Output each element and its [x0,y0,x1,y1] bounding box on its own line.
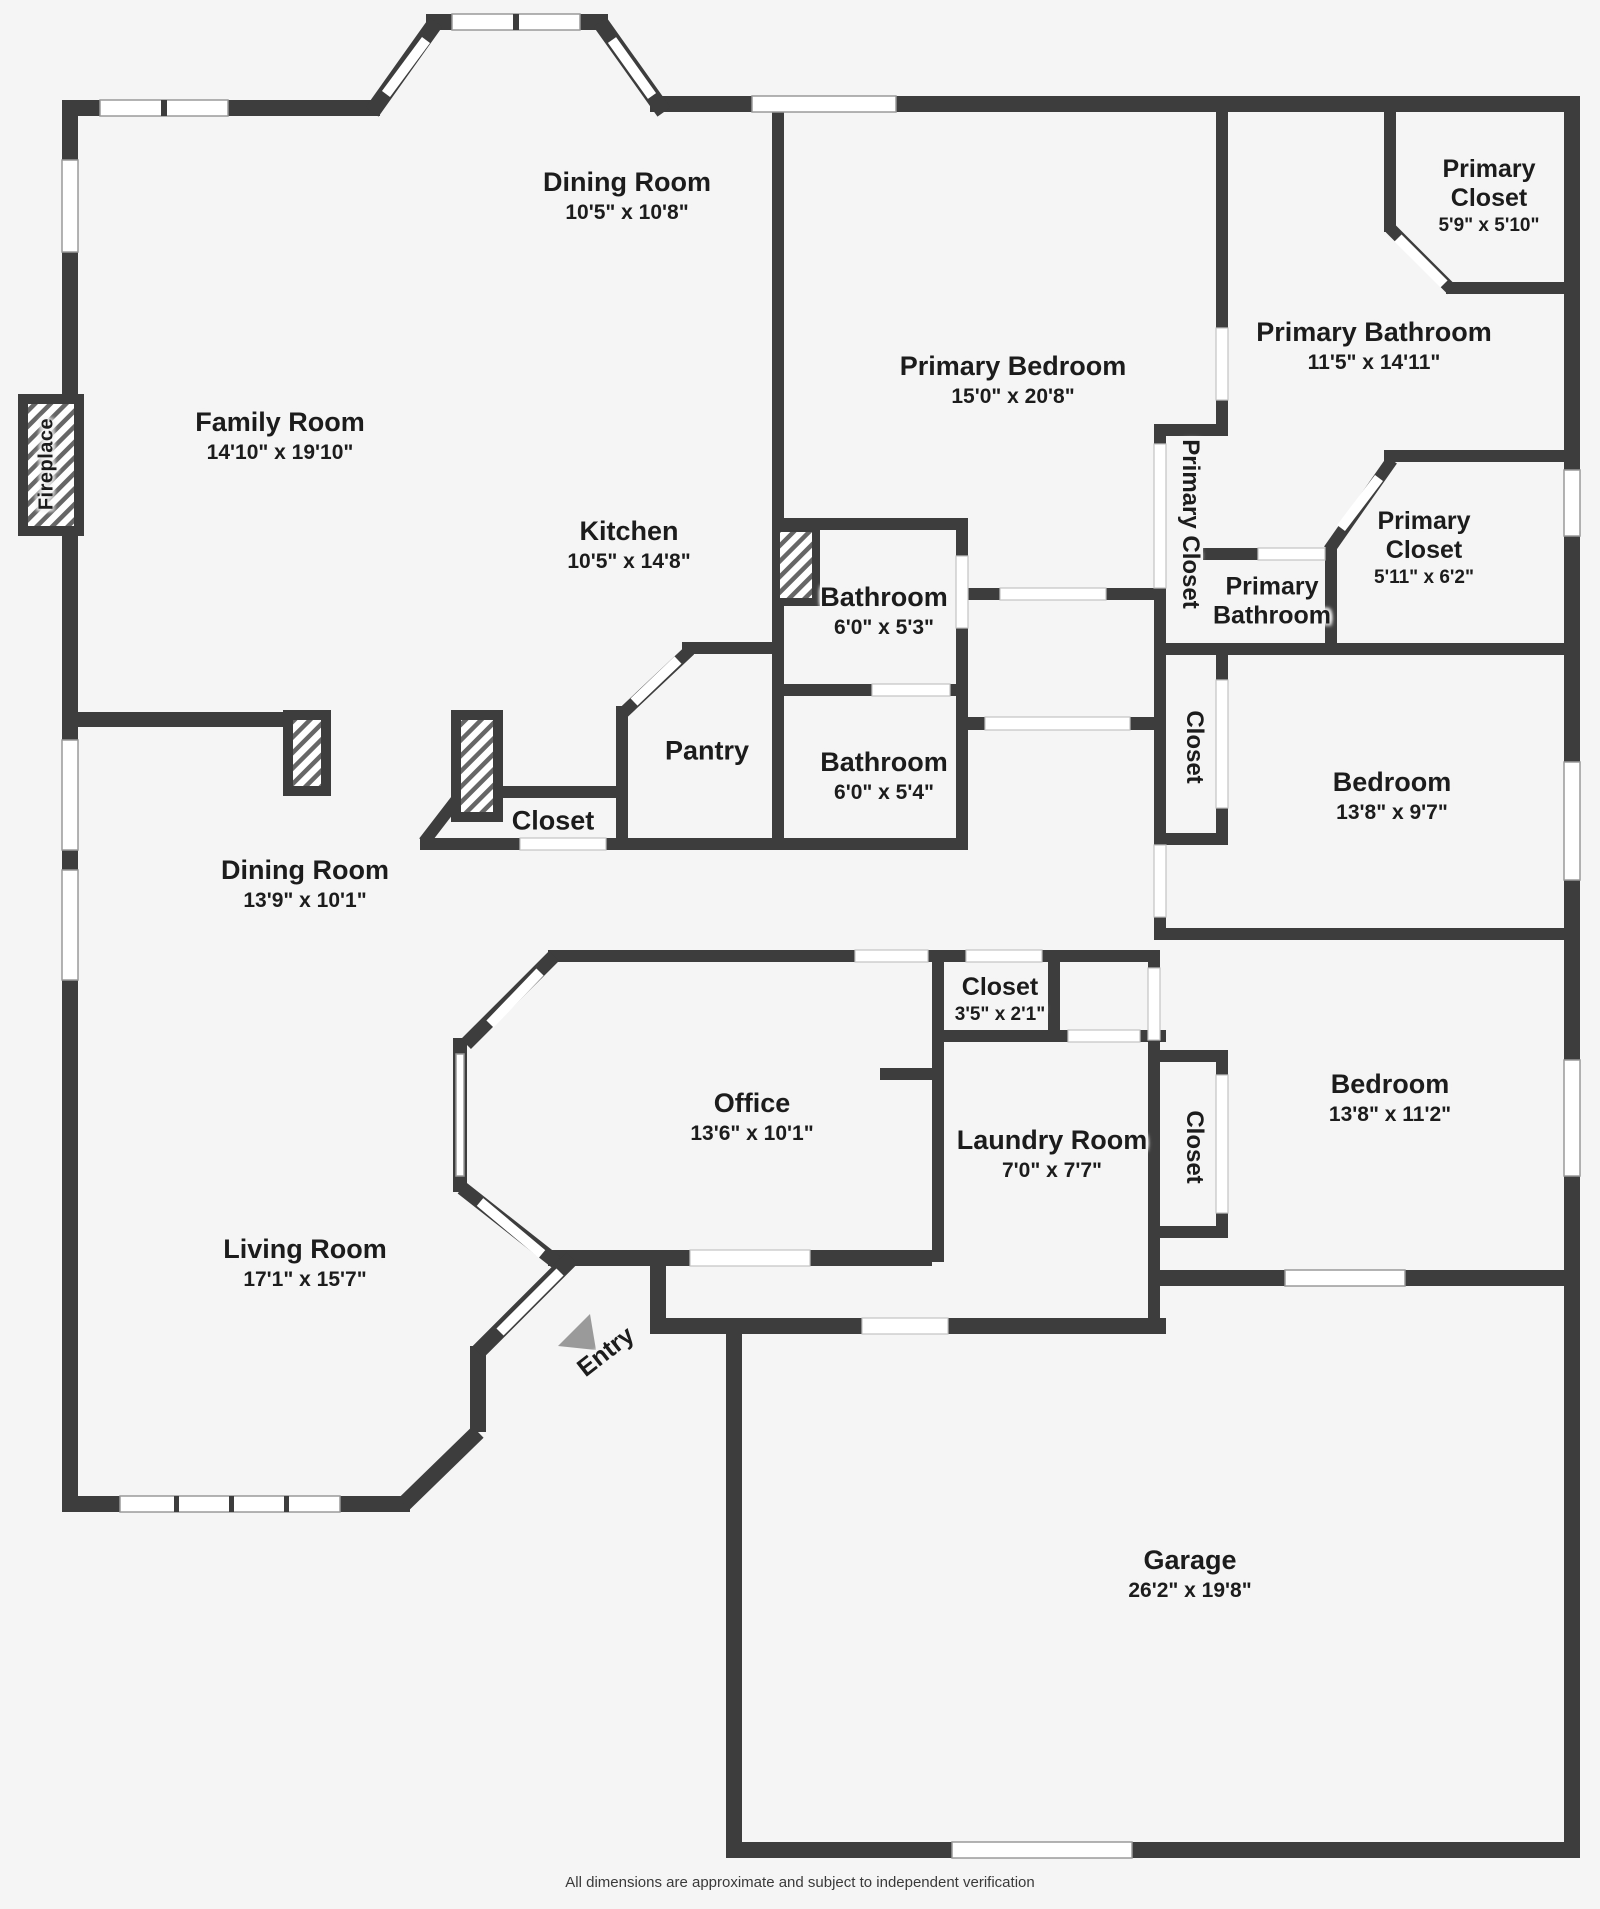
room-label-primary-closet-small: Primary Closet 5'11" x 6'2" [1359,507,1489,589]
floor-plan: Dining Room 10'5" x 10'8" Family Room 14… [0,0,1600,1909]
room-label-primary-closet-top-right: Primary Closet 5'9" x 5'10" [1414,155,1564,237]
room-label-closet-hall: Closet [512,805,595,836]
room-label-primary-bathroom: Primary Bathroom 11'5" x 14'11" [1256,317,1492,375]
room-label-dining-room-main: Dining Room 13'9" x 10'1" [221,855,389,913]
room-label-closet-small: Closet 3'5" x 2'1" [955,973,1045,1027]
column-hatch-2 [461,720,493,812]
room-label-garage: Garage 26'2" x 19'8" [1128,1545,1251,1603]
room-label-laundry-room: Laundry Room 7'0" x 7'7" [957,1125,1148,1183]
room-label-closet-bedroom1: Closet [1180,710,1208,783]
chimney-hatch [780,532,812,598]
room-label-bathroom-lower: Bathroom 6'0" x 5'4" [820,747,948,805]
disclaimer-text: All dimensions are approximate and subje… [0,1874,1600,1891]
room-label-primary-bathroom-small: Primary Bathroom [1197,572,1347,630]
room-label-pantry: Pantry [665,735,749,766]
column-hatch-1 [293,720,321,786]
walls-layer [18,14,1580,1858]
room-label-office: Office 13'6" x 10'1" [690,1088,813,1146]
room-label-bedroom2: Bedroom 13'8" x 11'2" [1329,1069,1451,1127]
room-label-living-room: Living Room 17'1" x 15'7" [223,1234,387,1292]
room-label-kitchen: Kitchen 10'5" x 14'8" [567,516,690,574]
room-label-family-room: Family Room 14'10" x 19'10" [195,407,365,465]
room-label-bedroom1: Bedroom 13'8" x 9'7" [1333,767,1452,825]
room-label-primary-bedroom: Primary Bedroom 15'0" x 20'8" [900,351,1127,409]
floor-plan-drawing [0,0,1600,1909]
room-label-dining-room-top: Dining Room 10'5" x 10'8" [543,167,711,225]
fireplace-label: Fireplace [36,418,59,510]
room-label-closet-bedroom2: Closet [1180,1110,1208,1183]
room-label-bathroom-upper: Bathroom 6'0" x 5'3" [820,582,948,640]
